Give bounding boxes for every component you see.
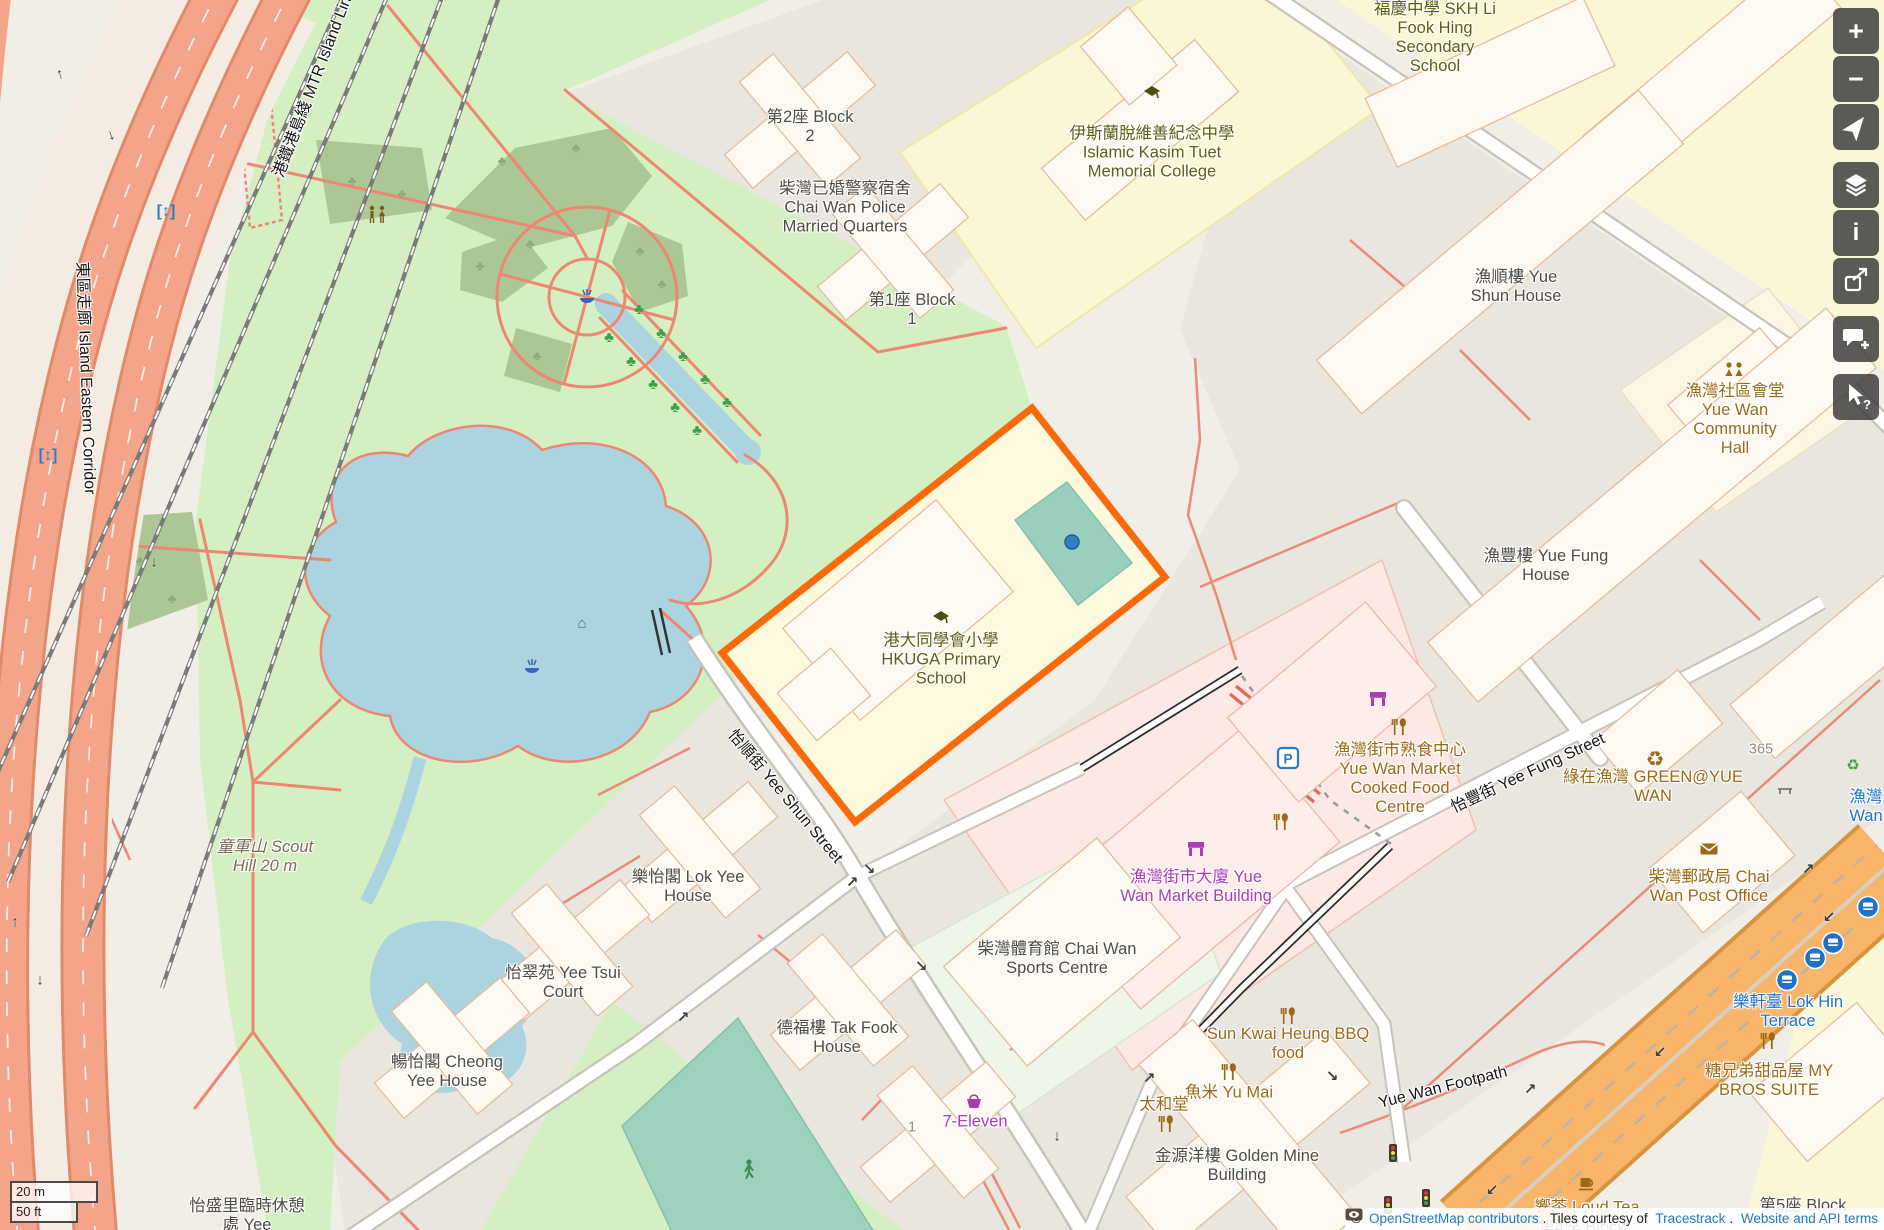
map-canvas[interactable]: ♣ ♣ ♣ ♣ ♣ ♣ ♣ ♣ ♣ ♣ ♣ ♣ ♣ ♣ ♣ ♣ ♣ ♣ ♣ ♣ …: [0, 0, 1884, 1230]
tree-icon: ♣: [656, 325, 666, 342]
attribution-tiles-text: . Tiles courtesy of: [1543, 1211, 1652, 1226]
tree-icon: ♣: [636, 243, 645, 258]
tree-icon: ♣: [398, 186, 407, 201]
tree-icon: ♣: [678, 348, 688, 365]
share-button[interactable]: [1833, 258, 1879, 304]
shelter-icon: ⌂: [577, 615, 586, 632]
tracestrack-link[interactable]: Tracestrack: [1655, 1211, 1725, 1226]
osm-contributors-link[interactable]: OpenStreetMap contributors: [1369, 1211, 1539, 1226]
tree-icon: ♣: [722, 394, 732, 411]
map-view: ♣ ♣ ♣ ♣ ♣ ♣ ♣ ♣ ♣ ♣ ♣ ♣ ♣ ♣ ♣ ♣ ♣ ♣ ♣ ♣ …: [0, 0, 1884, 1230]
svg-text:P: P: [1283, 751, 1292, 767]
tree-icon: ♣: [526, 236, 535, 251]
tree-icon: ♣: [700, 371, 710, 388]
scale-bar: 20 m 50 ft: [10, 1181, 98, 1223]
zoom-out-button[interactable]: −: [1833, 56, 1879, 102]
map-note-icon: [1840, 323, 1872, 355]
elevator-icon: [↕]: [157, 203, 176, 220]
recycling-icon: ♻: [1646, 748, 1665, 771]
parking-icon: P: [1278, 748, 1298, 768]
query-cursor-icon: ?: [1840, 381, 1872, 413]
info-icon: i: [1853, 219, 1860, 247]
post-office-icon: [1701, 844, 1718, 855]
tree-icon: ♣: [658, 276, 667, 291]
image-credit-icon: [1345, 1208, 1363, 1221]
attribution-dot: .: [1729, 1211, 1737, 1226]
tree-icon: ♣: [626, 353, 636, 370]
locate-button[interactable]: [1833, 104, 1879, 150]
tree-icon: ♣: [498, 153, 507, 168]
svg-text:?: ?: [1863, 397, 1871, 412]
plus-icon: +: [1848, 16, 1864, 47]
layers-icon: [1840, 169, 1872, 201]
attribution-bar: © OpenStreetMap contributors. Tiles cour…: [1345, 1208, 1884, 1230]
share-icon: [1840, 265, 1872, 297]
locate-arrow-icon: [1840, 111, 1872, 143]
map-marker-dot[interactable]: [1065, 535, 1079, 549]
elevator-icon: [↕]: [39, 447, 58, 464]
minus-icon: −: [1848, 64, 1864, 95]
zoom-in-button[interactable]: +: [1833, 8, 1879, 54]
tree-icon: ♣: [604, 329, 614, 346]
layers-button[interactable]: [1833, 162, 1879, 208]
query-features-button[interactable]: ?: [1833, 374, 1879, 420]
tree-icon: ♣: [572, 140, 581, 155]
recycling-icon: ♻: [1846, 757, 1859, 774]
scale-metric: 20 m: [10, 1181, 98, 1203]
info-button[interactable]: i: [1833, 210, 1879, 256]
tree-icon: ♣: [648, 376, 658, 393]
terms-link[interactable]: Website and API terms: [1741, 1211, 1878, 1226]
tree-icon: ♣: [692, 422, 702, 439]
tree-icon: ♣: [670, 399, 680, 416]
tree-icon: ♣: [634, 301, 644, 318]
tree-icon: ♣: [348, 173, 357, 188]
tree-icon: ♣: [136, 553, 145, 568]
scale-imperial: 50 ft: [10, 1201, 78, 1223]
map-note-button[interactable]: [1833, 316, 1879, 362]
map-controls: + − i: [1833, 8, 1879, 420]
tree-icon: ♣: [533, 348, 542, 363]
tree-icon: ♣: [476, 258, 485, 273]
tree-icon: ♣: [168, 591, 177, 606]
